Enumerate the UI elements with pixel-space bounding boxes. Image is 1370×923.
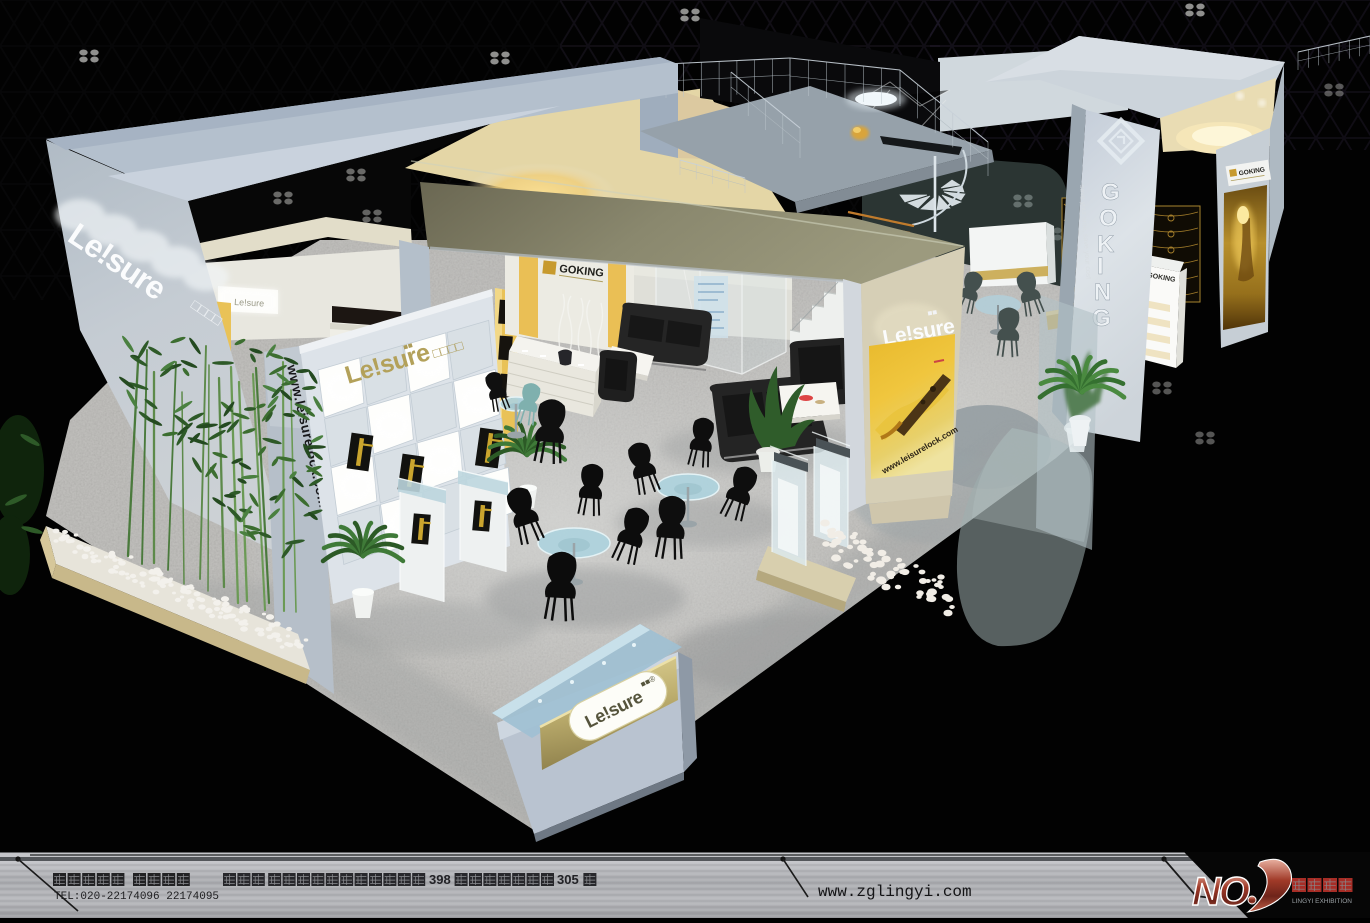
svg-text:NO: NO — [1192, 870, 1250, 914]
svg-text:■■: ■■ — [927, 307, 938, 318]
svg-text:www.zglingyi.com: www.zglingyi.com — [818, 883, 972, 901]
svg-text:398: 398 — [429, 872, 451, 887]
svg-text:G: G — [1101, 179, 1120, 206]
svg-text:305: 305 — [557, 872, 579, 887]
svg-text:O: O — [1099, 205, 1118, 232]
svg-text:Le!sure: Le!sure — [234, 297, 265, 309]
svg-text:TEL:020-22174096 22174095: TEL:020-22174096 22174095 — [54, 891, 219, 903]
svg-text:LINGYI EXHIBITION: LINGYI EXHIBITION — [1292, 898, 1352, 905]
svg-text:N: N — [1094, 279, 1111, 306]
svg-text:I: I — [1097, 253, 1104, 280]
